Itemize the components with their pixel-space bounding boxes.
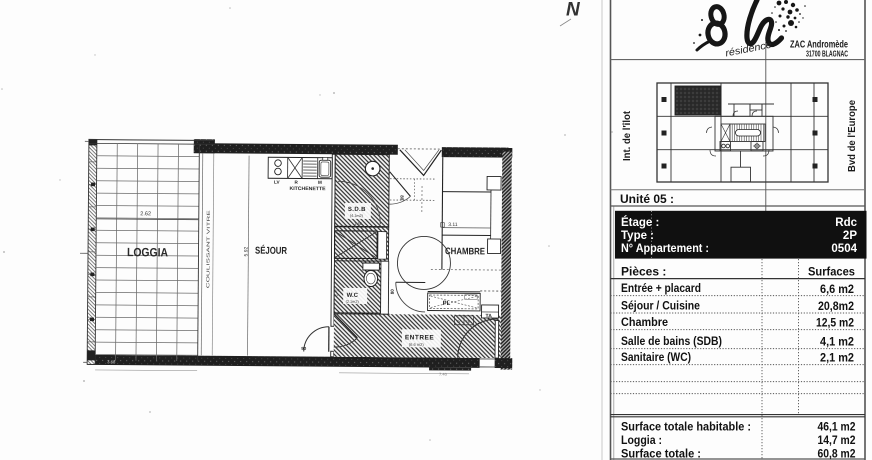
svg-text:Sanitaire (WC): Sanitaire (WC) [621,352,691,364]
svg-text:Chambre: Chambre [621,317,668,329]
svg-text:LV: LV [274,180,281,185]
svg-text:Surfaces: Surfaces [808,267,855,279]
svg-text:2.62: 2.62 [140,211,151,217]
svg-text:LOGGIA: LOGGIA [127,245,168,259]
svg-text:Bvd de l'Europe: Bvd de l'Europe [846,100,858,172]
svg-text:6,6 m2: 6,6 m2 [820,284,854,296]
svg-text:1.56: 1.56 [354,221,363,226]
svg-text:20,8m2: 20,8m2 [818,301,854,313]
svg-text:2P: 2P [843,230,857,242]
svg-text:31700 BLAGNAC: 31700 BLAGNAC [806,50,848,59]
svg-text:W.C: W.C [347,293,359,299]
svg-text:5.92: 5.92 [243,246,249,256]
svg-text:(6.6 m2): (6.6 m2) [409,342,425,347]
svg-text:Pièces :: Pièces : [621,265,666,279]
svg-text:2,1 m2: 2,1 m2 [820,353,854,365]
svg-text:S.D.B: S.D.B [348,207,366,213]
svg-text:46,1 m2: 46,1 m2 [818,421,856,433]
svg-text:KITCHENETTE: KITCHENETTE [289,186,326,192]
svg-text:(2.1m2): (2.1m2) [346,300,360,304]
svg-text:60,8 m2: 60,8 m2 [818,449,856,460]
svg-text:7.40: 7.40 [439,372,448,377]
svg-text:0504: 0504 [831,243,857,255]
svg-text:COULISSANT VITRE: COULISSANT VITRE [205,210,211,288]
svg-text:Surface totale habitable :: Surface totale habitable : [621,421,751,433]
svg-text:SÉJOUR: SÉJOUR [255,244,288,257]
svg-text:Type :: Type : [621,230,654,242]
svg-text:Surface totale :: Surface totale : [621,449,701,460]
svg-text:3.11: 3.11 [448,222,458,228]
svg-text:Entrée + placard: Entrée + placard [621,283,701,295]
svg-text:90: 90 [301,346,307,351]
svg-text:PL: PL [443,301,451,307]
svg-text:(4.1m2): (4.1m2) [350,214,364,218]
svg-text:3.68: 3.68 [107,359,116,364]
svg-text:4,1 m2: 4,1 m2 [820,336,854,348]
svg-text:TA: TA [486,313,493,319]
svg-text:N: N [566,0,581,21]
svg-text:CHAMBRE: CHAMBRE [445,246,485,257]
svg-text:Salle de bains (SDB): Salle de bains (SDB) [621,336,722,348]
svg-text:M: M [318,180,322,185]
svg-text:Séjour / Cuisine: Séjour / Cuisine [621,301,700,313]
svg-text:Rdc: Rdc [835,217,857,229]
svg-text:Étage :: Étage : [621,216,659,229]
svg-text:N° Appartement :: N° Appartement : [621,243,709,255]
svg-text:12,5 m2: 12,5 m2 [816,318,854,330]
svg-text:Loggia :: Loggia : [621,435,662,447]
svg-text:80: 80 [390,289,395,295]
svg-text:ENTREE: ENTREE [405,334,435,341]
svg-text:14,7 m2: 14,7 m2 [818,435,856,447]
svg-text:TB: TB [466,320,470,324]
svg-text:EF: EF [335,293,339,297]
svg-text:Int. de l'îlot: Int. de l'îlot [621,111,633,161]
svg-text:Unité 05 :: Unité 05 : [620,192,674,206]
